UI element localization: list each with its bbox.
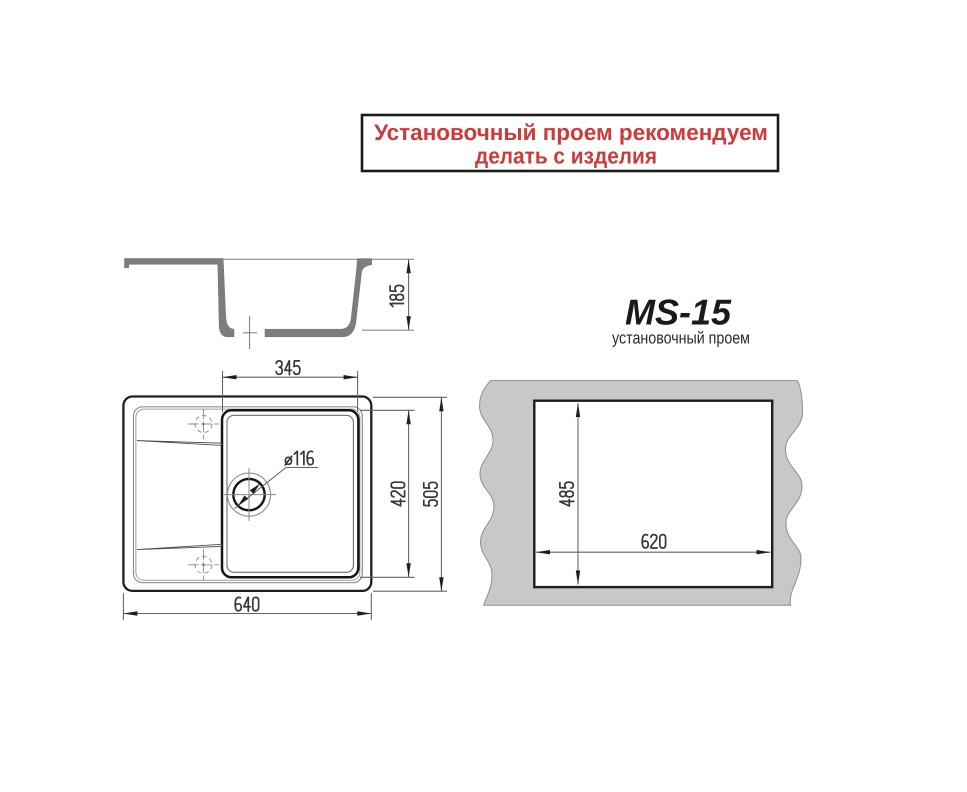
svg-text:Установочный проем рекомендуем: Установочный проем рекомендуем (374, 120, 768, 145)
svg-text:установочный проем: установочный проем (612, 329, 750, 348)
svg-text:MS-15: MS-15 (625, 292, 732, 333)
svg-text:делать с изделия: делать с изделия (475, 144, 657, 169)
